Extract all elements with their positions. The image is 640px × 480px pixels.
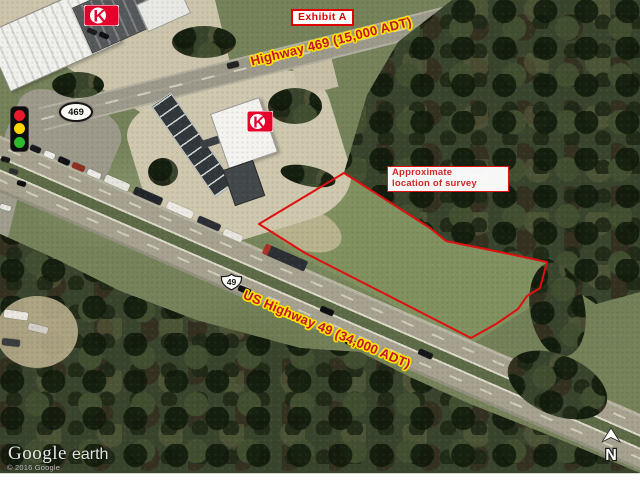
circle-k-logo: K <box>84 5 119 26</box>
exhibit-map-screenshot: Exhibit A Highway 469 (15,000 ADT) US Hi… <box>0 0 640 480</box>
exhibit-title: Exhibit A <box>291 9 354 26</box>
tree-cluster <box>172 26 236 58</box>
google-logo-text: Google <box>8 443 67 465</box>
signal-yellow-lamp <box>14 123 25 134</box>
route-49-shield: 49 <box>220 273 243 291</box>
earth-logo-text: earth <box>72 446 108 464</box>
bottom-margin <box>0 473 640 480</box>
survey-note-line2: location of survey <box>392 179 506 190</box>
circle-k-letter: K <box>93 7 106 26</box>
route-49-number: 49 <box>227 277 237 287</box>
survey-location-note: Approximate location of survey <box>387 166 509 192</box>
signal-red-lamp <box>14 110 25 121</box>
route-469-shield: 469 <box>59 102 93 122</box>
north-arrow-letter: N <box>605 447 617 464</box>
google-earth-watermark: Google earth <box>8 443 108 465</box>
circle-k-logo: K <box>247 111 273 132</box>
tree-cluster <box>52 72 104 98</box>
copyright-notice: © 2016 Google <box>7 463 60 472</box>
tree-cluster <box>148 158 178 186</box>
tree-cluster <box>268 88 322 124</box>
traffic-light-icon <box>10 106 29 152</box>
north-arrow: N <box>600 427 622 464</box>
north-arrow-icon <box>602 428 620 442</box>
circle-k-letter: K <box>253 115 265 132</box>
aerial-photo <box>0 0 640 474</box>
survey-note-line1: Approximate <box>392 168 506 179</box>
signal-green-lamp <box>14 137 25 148</box>
route-469-number: 469 <box>68 107 84 118</box>
